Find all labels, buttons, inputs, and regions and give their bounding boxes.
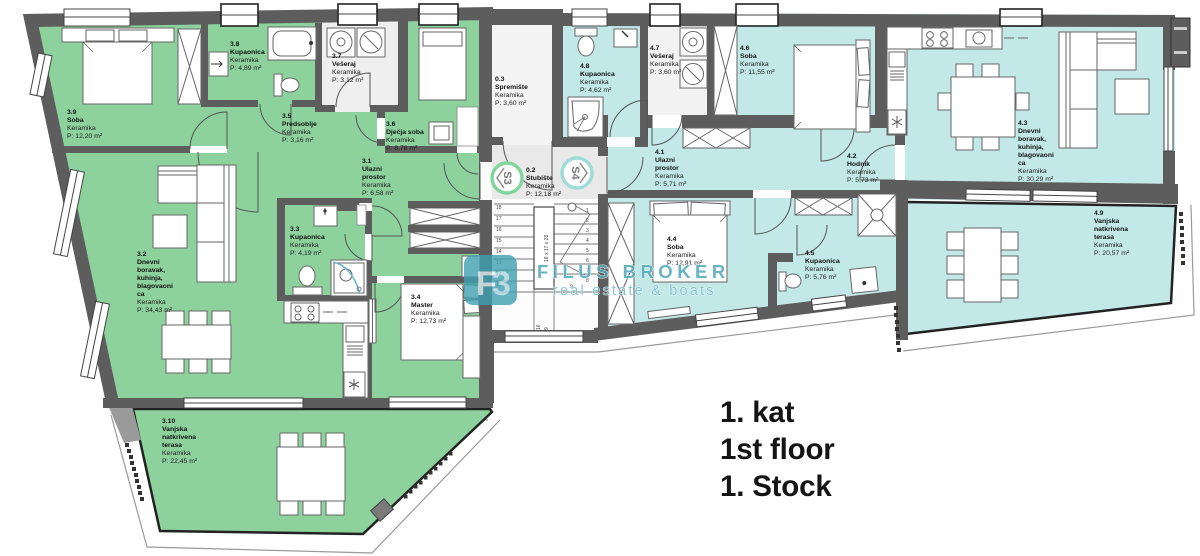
svg-text:FILUS BROKER: FILUS BROKER <box>537 261 730 282</box>
svg-text:real estate & boats: real estate & boats <box>553 283 716 299</box>
svg-text:1. Stock: 1. Stock <box>720 470 832 503</box>
svg-text:2: 2 <box>586 218 589 224</box>
svg-text:18: 18 <box>496 205 502 211</box>
svg-text:1: 1 <box>586 208 589 214</box>
svg-text:4: 4 <box>586 238 589 244</box>
svg-text:3: 3 <box>586 228 589 234</box>
svg-text:S3: S3 <box>501 171 513 184</box>
svg-text:5: 5 <box>586 248 589 254</box>
svg-text:16: 16 <box>496 227 502 233</box>
svg-text:1. kat: 1. kat <box>720 396 795 429</box>
svg-text:15: 15 <box>496 238 502 244</box>
svg-text:1st floor: 1st floor <box>720 433 835 466</box>
svg-text:14: 14 <box>496 249 502 255</box>
svg-text:18 x 17 x 28: 18 x 17 x 28 <box>544 235 550 262</box>
svg-text:9: 9 <box>544 327 550 330</box>
svg-text:17: 17 <box>496 216 502 222</box>
svg-text:3: 3 <box>492 265 511 303</box>
svg-text:16: 16 <box>536 324 542 330</box>
svg-text:S4: S4 <box>569 166 581 180</box>
